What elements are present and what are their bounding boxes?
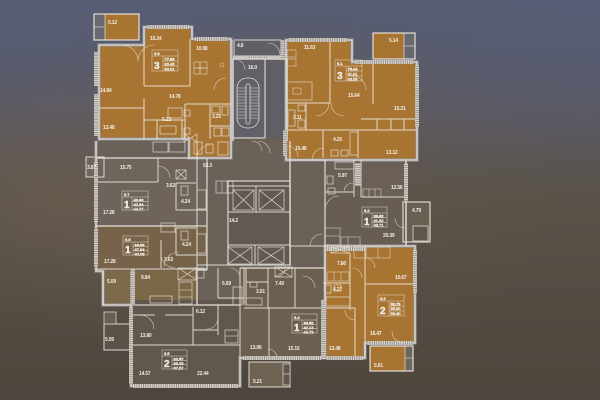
svg-text:15.48: 15.48 <box>295 146 307 152</box>
svg-text:15.21: 15.21 <box>394 106 406 112</box>
svg-text:5.21: 5.21 <box>253 379 262 385</box>
svg-text:58.40: 58.40 <box>391 311 402 316</box>
svg-text:44.77: 44.77 <box>134 207 145 212</box>
svg-text:15.64: 15.64 <box>348 93 360 99</box>
svg-text:6.8: 6.8 <box>154 51 160 56</box>
svg-text:3.11: 3.11 <box>293 115 302 121</box>
svg-text:3.87: 3.87 <box>87 165 96 171</box>
svg-text:5.61: 5.61 <box>374 363 383 369</box>
svg-text:16.47: 16.47 <box>370 331 382 337</box>
svg-text:3.25: 3.25 <box>212 114 221 120</box>
svg-text:83.01: 83.01 <box>165 67 176 72</box>
svg-text:43.71: 43.71 <box>374 223 385 228</box>
svg-text:40.08: 40.08 <box>135 252 146 257</box>
svg-text:6.5: 6.5 <box>164 351 170 356</box>
svg-text:2: 2 <box>380 306 386 317</box>
svg-text:3: 3 <box>337 71 343 82</box>
svg-text:6.3: 6.3 <box>380 296 386 301</box>
svg-text:12.56: 12.56 <box>391 185 403 191</box>
svg-text:15.75: 15.75 <box>120 165 132 171</box>
svg-text:6.1: 6.1 <box>337 61 343 66</box>
svg-text:13.06: 13.06 <box>250 345 262 351</box>
svg-text:20.39: 20.39 <box>383 233 395 239</box>
svg-text:2: 2 <box>164 359 170 370</box>
svg-text:13.80: 13.80 <box>140 333 152 339</box>
svg-text:16.0: 16.0 <box>248 65 257 71</box>
svg-text:5.14: 5.14 <box>389 38 398 44</box>
svg-text:5.59: 5.59 <box>222 281 231 287</box>
svg-text:3: 3 <box>154 61 160 72</box>
svg-text:4.24: 4.24 <box>181 199 190 205</box>
svg-text:1: 1 <box>294 323 300 334</box>
svg-text:13.12: 13.12 <box>386 150 398 156</box>
svg-text:6.4: 6.4 <box>294 315 300 320</box>
svg-text:14.2: 14.2 <box>229 218 238 224</box>
svg-text:10.67: 10.67 <box>395 275 407 281</box>
svg-text:17.28: 17.28 <box>104 259 116 265</box>
svg-text:9.84: 9.84 <box>141 275 150 281</box>
svg-text:4.8: 4.8 <box>237 43 244 49</box>
svg-text:3.63: 3.63 <box>164 257 173 263</box>
svg-text:3.63: 3.63 <box>166 183 175 189</box>
svg-text:4.24: 4.24 <box>182 242 191 248</box>
svg-text:5.09: 5.09 <box>107 279 116 285</box>
svg-text:5.12: 5.12 <box>108 20 117 26</box>
svg-text:6.12: 6.12 <box>196 309 205 315</box>
svg-text:6.7: 6.7 <box>124 192 130 197</box>
svg-text:6.6: 6.6 <box>125 237 131 242</box>
svg-text:14.57: 14.57 <box>139 371 151 377</box>
svg-text:16.24: 16.24 <box>150 36 162 42</box>
svg-text:44.73: 44.73 <box>304 330 315 335</box>
svg-text:10.08: 10.08 <box>196 46 208 52</box>
svg-text:13.48: 13.48 <box>329 346 341 352</box>
svg-text:67.57: 67.57 <box>174 366 185 371</box>
svg-text:5.05: 5.05 <box>105 337 114 343</box>
svg-text:83.58: 83.58 <box>348 77 359 82</box>
svg-text:6.2: 6.2 <box>364 208 370 213</box>
svg-text:13.48: 13.48 <box>103 125 115 131</box>
svg-text:4.79: 4.79 <box>412 208 421 214</box>
svg-text:1: 1 <box>124 200 130 211</box>
svg-text:5.97: 5.97 <box>338 173 347 179</box>
svg-text:7.40: 7.40 <box>275 281 284 287</box>
svg-text:17.28: 17.28 <box>103 210 115 216</box>
svg-text:14.78: 14.78 <box>169 94 181 100</box>
svg-text:4.25: 4.25 <box>333 137 342 143</box>
svg-text:22.44: 22.44 <box>197 371 209 377</box>
svg-text:11.63: 11.63 <box>304 45 316 51</box>
svg-text:1: 1 <box>364 217 370 228</box>
svg-text:14.84: 14.84 <box>100 88 112 94</box>
svg-text:4.37: 4.37 <box>333 287 342 293</box>
svg-text:3.91: 3.91 <box>256 289 265 295</box>
svg-text:1: 1 <box>125 245 131 256</box>
svg-text:53.3: 53.3 <box>203 163 212 169</box>
svg-text:15.15: 15.15 <box>288 346 300 352</box>
svg-text:5.22: 5.22 <box>162 117 171 123</box>
svg-text:7.80: 7.80 <box>337 261 346 267</box>
